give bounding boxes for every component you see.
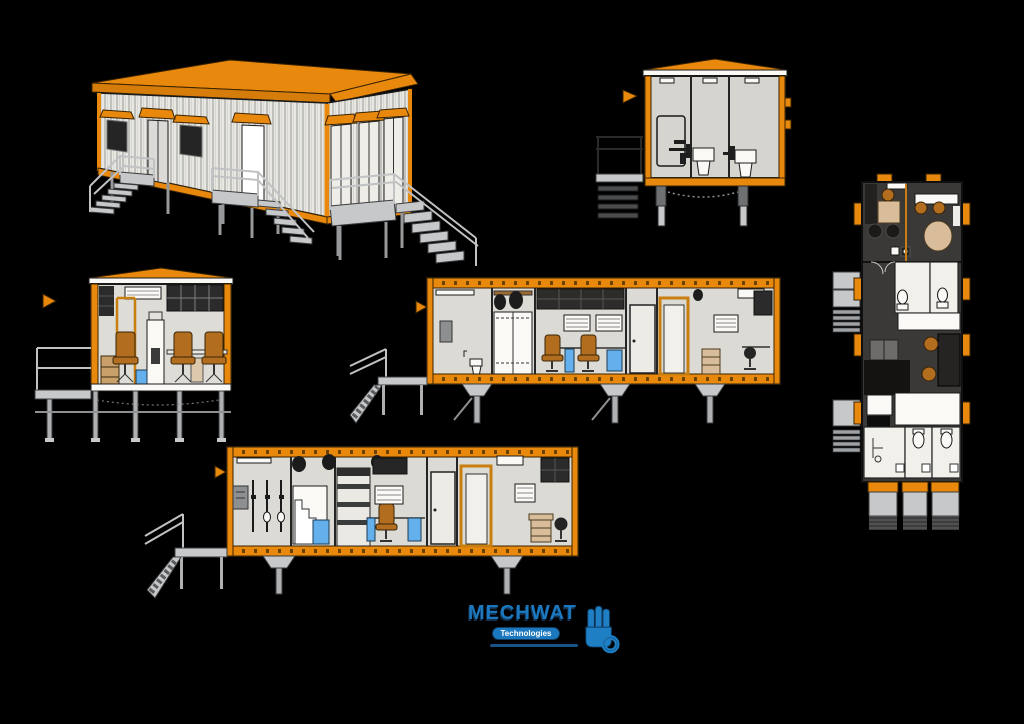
entry-canopies-bottom <box>868 482 959 530</box>
doors <box>630 298 688 374</box>
isometric-exterior-view <box>80 20 500 270</box>
logo-tagline-bar <box>490 644 578 647</box>
logo-wordmark: MECHWAT <box>468 602 578 625</box>
access-stairs <box>596 137 643 218</box>
section-marker <box>215 466 226 478</box>
support-legs <box>454 384 725 423</box>
cabin-shell <box>645 76 791 178</box>
end-elevation-section <box>590 40 795 235</box>
brand-logo: MECHWAT Technologies <box>468 602 620 654</box>
logo-subtitle: Technologies <box>492 627 560 640</box>
section-marker <box>623 90 637 103</box>
platform-left <box>35 348 91 399</box>
support-legs <box>263 556 523 594</box>
cross-section-office <box>35 260 265 460</box>
doors <box>431 466 491 546</box>
wc-stalls-bottom <box>864 427 960 478</box>
floor-deck <box>91 384 231 391</box>
drawing-sheet: { "page": { "background": "#000000", "wi… <box>0 0 1024 724</box>
long-section-lower <box>145 440 590 605</box>
access-stairs <box>350 349 427 423</box>
section-marker <box>416 301 427 313</box>
floor-plan-view <box>825 168 980 540</box>
floor-rail <box>645 178 785 186</box>
gable-roof <box>89 268 233 284</box>
long-section-upper <box>350 265 790 430</box>
gable-roof <box>643 59 787 76</box>
tables-row <box>867 393 960 427</box>
support-legs <box>656 186 748 226</box>
section-marker <box>43 294 56 308</box>
access-stairs <box>145 514 227 598</box>
ok-hand-icon <box>582 604 620 654</box>
